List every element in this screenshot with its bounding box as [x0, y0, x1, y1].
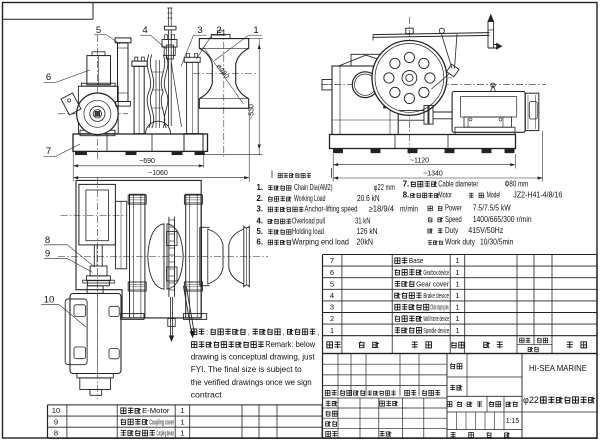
svg-text:7: 7 — [46, 146, 51, 157]
svg-text:1: 1 — [455, 291, 459, 300]
svg-text:10: 10 — [44, 295, 55, 306]
svg-text:~1340: ~1340 — [423, 170, 443, 177]
svg-text:3: 3 — [197, 25, 202, 36]
svg-text:1: 1 — [455, 279, 459, 288]
svg-text:~1120: ~1120 — [410, 157, 429, 164]
svg-text:1: 1 — [455, 326, 459, 335]
svg-text:contract: contract — [191, 389, 223, 399]
svg-text:5.: 5. — [257, 227, 264, 236]
svg-text:126 kN: 126 kN — [357, 227, 378, 236]
svg-text:,: , — [283, 329, 285, 336]
svg-text:Model: Model — [487, 191, 501, 200]
svg-text:E-Motor: E-Motor — [142, 406, 170, 415]
svg-text:≥18/9/4: ≥18/9/4 — [369, 205, 395, 214]
svg-text:1: 1 — [455, 314, 459, 323]
svg-text:7: 7 — [330, 256, 334, 265]
svg-text:Chain Dia(AM2): Chain Dia(AM2) — [294, 183, 333, 192]
svg-text:3: 3 — [330, 303, 334, 312]
svg-text:8: 8 — [45, 235, 50, 246]
svg-text:4: 4 — [330, 291, 334, 300]
svg-text:Overload pull: Overload pull — [292, 217, 325, 226]
svg-text:4: 4 — [142, 25, 147, 36]
svg-text:Chain stopping dev.: Chain stopping dev. — [431, 303, 450, 312]
svg-text:9: 9 — [54, 417, 58, 426]
svg-text:20kN: 20kN — [357, 238, 374, 247]
svg-text:Speed: Speed — [445, 215, 462, 224]
svg-text:~530: ~530 — [248, 104, 255, 120]
svg-text:6: 6 — [46, 72, 51, 83]
svg-text:5: 5 — [96, 25, 101, 36]
svg-text:FYI. The final size is subject: FYI. The final size is subject to — [191, 364, 302, 374]
svg-text:1:15: 1:15 — [506, 418, 520, 425]
svg-text:1: 1 — [180, 406, 184, 415]
svg-text:1: 1 — [455, 303, 459, 312]
svg-text:2: 2 — [216, 25, 221, 36]
svg-text:1: 1 — [330, 326, 334, 335]
svg-text:7.: 7. — [403, 180, 410, 189]
svg-text:1400/665/300 r/min: 1400/665/300 r/min — [473, 215, 532, 224]
svg-text:6.: 6. — [257, 238, 264, 247]
svg-text:Coupling cover: Coupling cover — [149, 417, 174, 426]
svg-text:φ22 mm: φ22 mm — [374, 183, 395, 192]
svg-text:~690: ~690 — [139, 158, 155, 165]
svg-text:9: 9 — [45, 249, 50, 260]
svg-text:Base: Base — [409, 256, 424, 265]
svg-text:6: 6 — [330, 268, 334, 277]
svg-text:Spindle device: Spindle device — [423, 326, 449, 335]
svg-text:φ22: φ22 — [523, 395, 539, 405]
svg-text:JZ2-H41-4/8/16: JZ2-H41-4/8/16 — [513, 191, 562, 200]
svg-text:2.: 2. — [257, 194, 264, 203]
svg-text:Brake device: Brake device — [423, 291, 449, 300]
svg-text:Remark: below: Remark: below — [265, 339, 316, 349]
svg-text:1: 1 — [455, 268, 459, 277]
svg-text:4.: 4. — [257, 217, 264, 226]
svg-text:Duty: Duty — [445, 226, 459, 235]
svg-text:1: 1 — [253, 25, 258, 36]
svg-text:2: 2 — [330, 314, 334, 323]
svg-text:Gear cover: Gear cover — [416, 279, 449, 288]
svg-text:1: 1 — [180, 417, 184, 426]
svg-text:drawing is conceptual drawing,: drawing is conceptual drawing, just — [191, 352, 316, 362]
svg-text:Warping end load: Warping end load — [292, 238, 349, 247]
svg-text:1.: 1. — [257, 183, 264, 192]
svg-text:10/30/5min: 10/30/5min — [480, 238, 514, 247]
svg-text:Holding load: Holding load — [292, 227, 324, 236]
svg-text:5: 5 — [330, 279, 334, 288]
svg-text:Φ80 mm: Φ80 mm — [505, 180, 529, 189]
svg-text:3.: 3. — [257, 205, 264, 214]
svg-text:Working Load: Working Load — [294, 194, 326, 203]
svg-text:Work duty: Work duty — [445, 238, 476, 247]
svg-text:Wall frame device: Wall frame device — [423, 314, 449, 323]
svg-text:7.5/7.5/5 kW: 7.5/7.5/5 kW — [473, 204, 511, 213]
svg-text:Cable diameter: Cable diameter — [438, 180, 478, 189]
svg-text:31 kN: 31 kN — [355, 217, 371, 226]
svg-text:8: 8 — [54, 429, 58, 438]
svg-text:Gearbox device: Gearbox device — [423, 268, 449, 277]
svg-text:Anchor-lifting speed: Anchor-lifting speed — [305, 205, 358, 214]
svg-text:,: , — [318, 329, 320, 336]
svg-text:10: 10 — [52, 406, 60, 415]
svg-text:the verified drawings once we: the verified drawings once we sign — [191, 377, 312, 387]
svg-text:1: 1 — [455, 256, 459, 265]
svg-text:415V/50Hz: 415V/50Hz — [468, 226, 503, 235]
svg-text:Power: Power — [445, 204, 462, 213]
svg-text:1: 1 — [180, 429, 184, 438]
svg-text:m/min: m/min — [400, 205, 418, 214]
svg-text:20.6 kN: 20.6 kN — [357, 194, 380, 203]
svg-text:HI-SEA MARINE: HI-SEA MARINE — [529, 364, 587, 373]
svg-text:8.: 8. — [403, 191, 410, 200]
svg-text:Coupling device: Coupling device — [157, 429, 175, 438]
svg-text:~1060: ~1060 — [148, 170, 168, 177]
svg-text:Motor: Motor — [438, 191, 452, 200]
svg-text:,: , — [248, 329, 250, 336]
svg-text::: : — [206, 329, 208, 336]
